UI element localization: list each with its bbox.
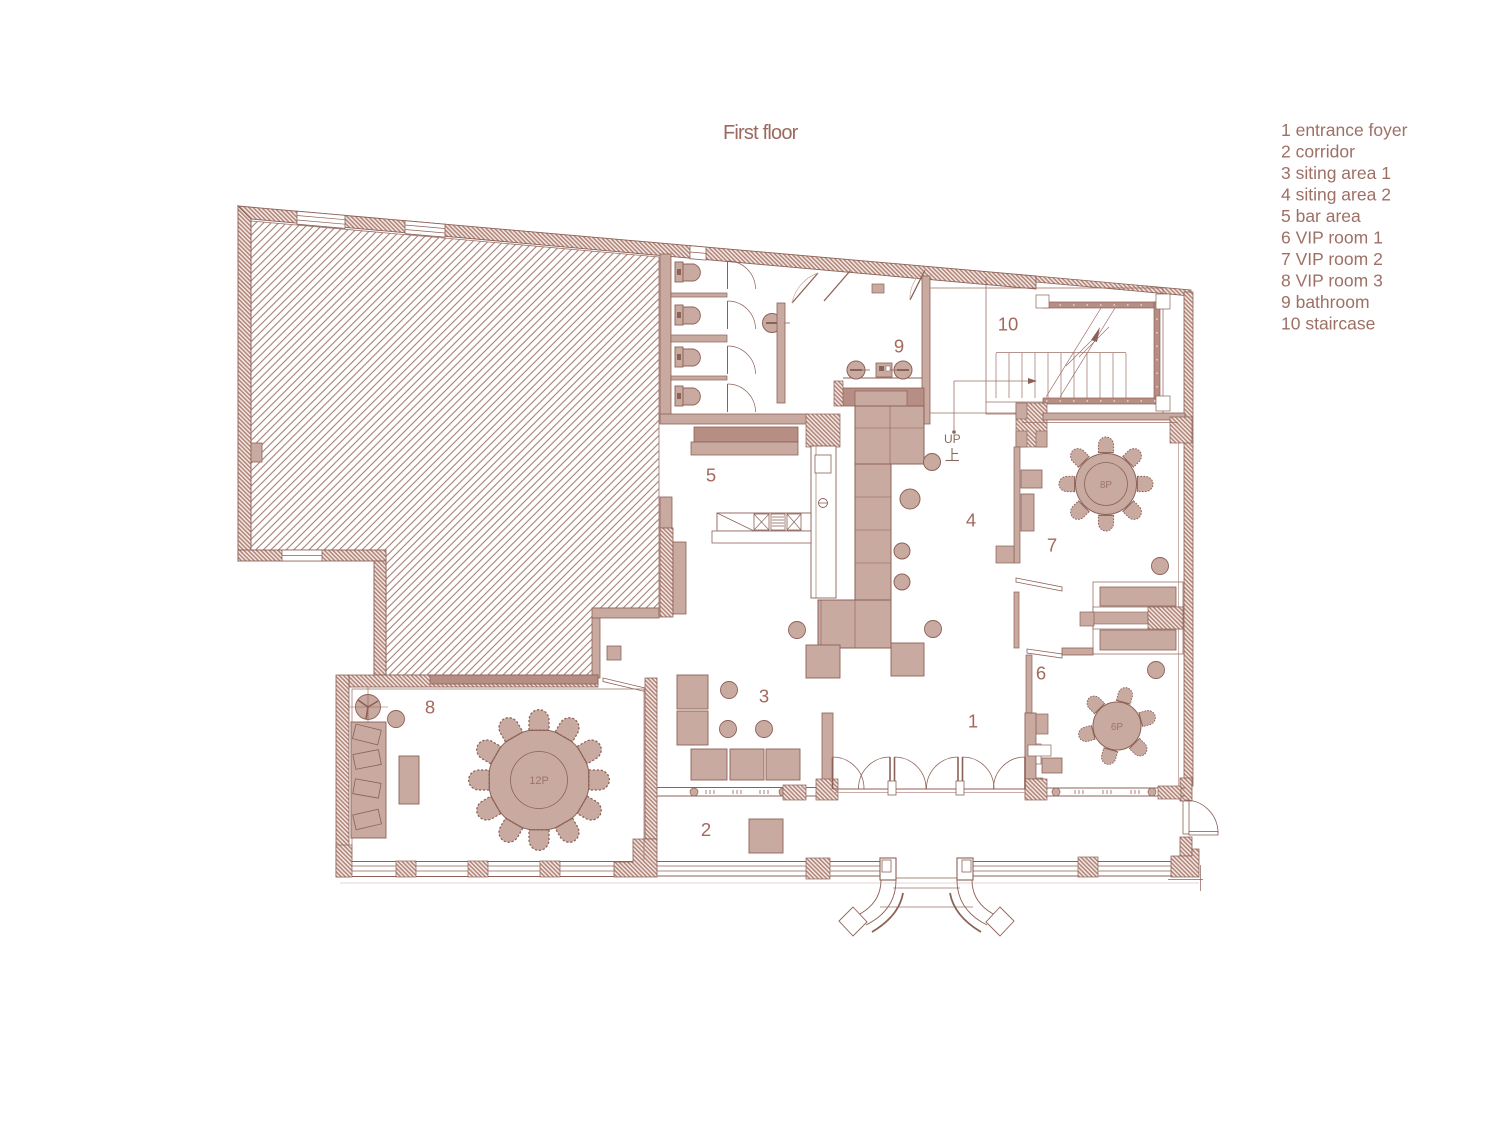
svg-text:6P: 6P	[1111, 722, 1124, 733]
svg-text:First floor: First floor	[723, 122, 799, 144]
svg-text:4 siting area 2: 4 siting area 2	[1281, 185, 1391, 205]
svg-text:10 staircase: 10 staircase	[1281, 314, 1375, 334]
svg-text:2 corridor: 2 corridor	[1281, 142, 1355, 162]
svg-text:3: 3	[759, 686, 769, 707]
svg-text:8P: 8P	[1100, 480, 1113, 491]
svg-text:5: 5	[706, 465, 716, 486]
svg-text:12P: 12P	[529, 775, 549, 787]
svg-text:9: 9	[894, 336, 904, 357]
svg-text:3 siting area 1: 3 siting area 1	[1281, 163, 1391, 183]
svg-text:6 VIP room 1: 6 VIP room 1	[1281, 228, 1383, 248]
svg-text:5 bar area: 5 bar area	[1281, 206, 1361, 226]
svg-text:7 VIP room 2: 7 VIP room 2	[1281, 249, 1383, 269]
svg-text:7: 7	[1047, 535, 1057, 556]
svg-text:4: 4	[966, 510, 976, 531]
svg-text:1: 1	[968, 711, 978, 732]
svg-text:1 entrance foyer: 1 entrance foyer	[1281, 120, 1408, 140]
svg-text:10: 10	[998, 314, 1019, 335]
svg-text:UP: UP	[944, 432, 961, 446]
svg-text:8 VIP room 3: 8 VIP room 3	[1281, 271, 1383, 291]
svg-text:6: 6	[1036, 663, 1046, 684]
svg-text:8: 8	[425, 697, 435, 718]
svg-text:9 bathroom: 9 bathroom	[1281, 292, 1370, 312]
svg-text:2: 2	[701, 819, 711, 840]
